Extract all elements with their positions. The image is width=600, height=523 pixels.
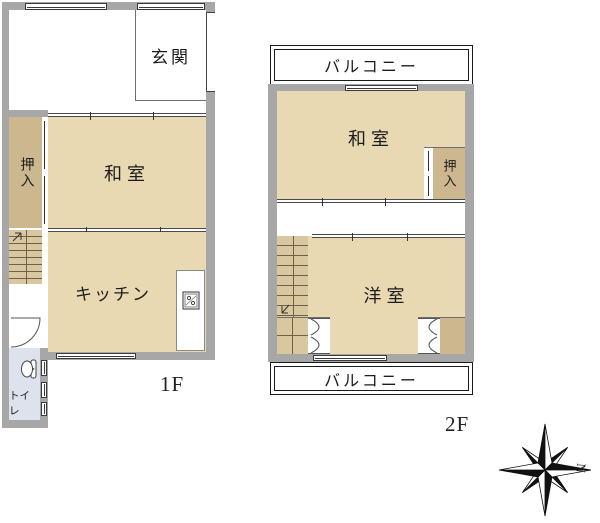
f2-right-wall bbox=[465, 84, 474, 362]
f2-oshiire-room: 押入 bbox=[433, 148, 465, 199]
door-tick bbox=[352, 233, 353, 241]
door-tick bbox=[385, 198, 386, 206]
f2-floor-label: 2F bbox=[445, 412, 469, 437]
closet-divider bbox=[292, 318, 293, 354]
f2-closet-right bbox=[440, 318, 465, 354]
closet-divider bbox=[277, 335, 308, 336]
floor-plan-canvas: 玄関 和室 押入 キッチン bbox=[0, 0, 600, 523]
f2-closet-left bbox=[277, 318, 308, 354]
f2-balcony-top: バルコニー bbox=[270, 45, 473, 85]
f2-washitsu-sliding-door bbox=[277, 199, 465, 203]
bifold-door-icon bbox=[418, 318, 440, 354]
f2-oshiire-top-line bbox=[424, 147, 465, 148]
f2-bottom-window bbox=[313, 355, 387, 361]
compass-north-label: N bbox=[572, 463, 589, 474]
f2-western-room-label: 洋室 bbox=[364, 282, 410, 308]
door-tick bbox=[407, 233, 408, 241]
bifold-door-icon bbox=[308, 318, 330, 354]
f2-balcony-bottom-label: バルコニー bbox=[324, 367, 419, 391]
door-tick bbox=[322, 198, 323, 206]
f2-oshiire-door-line-1 bbox=[428, 151, 429, 171]
f2-top-window bbox=[345, 85, 418, 91]
f2-balcony-top-label: バルコニー bbox=[324, 53, 419, 77]
f2-western-sliding-door bbox=[312, 234, 465, 238]
f2-left-wall bbox=[268, 84, 277, 362]
f2-oshiire-door-line-2 bbox=[428, 176, 429, 196]
f2-balcony-bottom: バルコニー bbox=[270, 362, 473, 395]
stair-arrow-icon bbox=[279, 303, 293, 316]
f2-washitsu-label: 和室 bbox=[348, 125, 394, 151]
f2-oshiire-label: 押入 bbox=[440, 159, 459, 189]
